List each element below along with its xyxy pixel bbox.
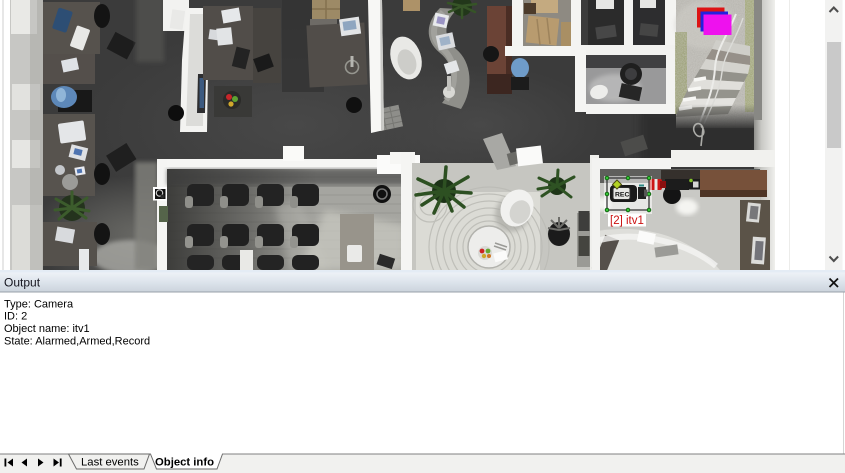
svg-text:REC: REC [615,192,629,199]
svg-text:Object name: itv1: Object name: itv1 [4,323,90,335]
svg-text:Last events: Last events [81,457,139,469]
svg-text:Output: Output [4,275,41,289]
svg-text:State: Alarmed,Armed,Record: State: Alarmed,Armed,Record [4,336,150,348]
svg-text:ID: 2: ID: 2 [4,311,27,323]
svg-text:Type: Camera: Type: Camera [4,299,74,311]
svg-text:[2] itv1: [2] itv1 [610,215,644,227]
svg-text:Object info: Object info [155,457,214,469]
